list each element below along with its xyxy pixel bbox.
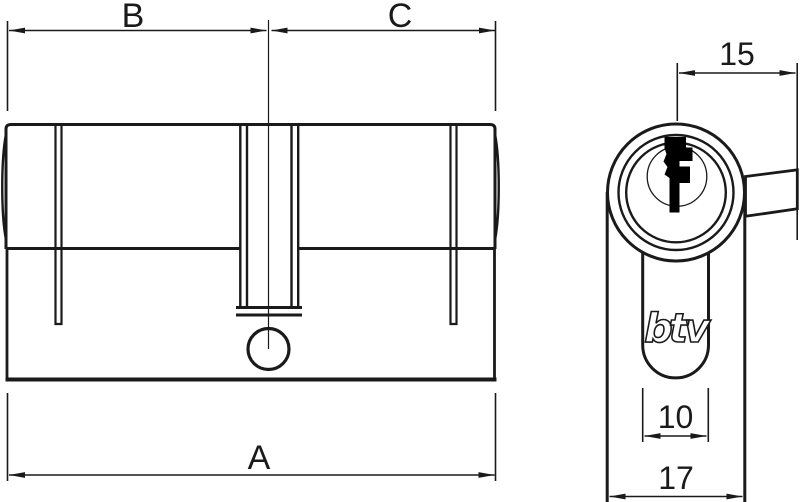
- arrowhead-17-right: [727, 494, 743, 500]
- dim-a-label: A: [248, 439, 271, 477]
- dim-15-label: 15: [719, 36, 755, 72]
- arrowhead-b-right: [251, 28, 267, 34]
- arrowhead-a-left: [9, 472, 25, 478]
- arrowhead-15-right: [780, 70, 796, 76]
- cylinder-side-view: [2, 20, 499, 380]
- cylinder-front-view: btv: [607, 124, 797, 502]
- cam-lobe: [746, 170, 798, 217]
- btv-logo: btv: [644, 306, 712, 352]
- dim-b-label: B: [122, 0, 145, 35]
- arrowhead-c-left: [272, 28, 288, 34]
- arrowhead-c-right: [479, 28, 495, 34]
- dim-17-label: 17: [658, 460, 694, 496]
- technical-drawing-canvas: B C A btv 15 10: [0, 0, 800, 502]
- barrel-outline: [6, 125, 495, 250]
- front-view-dimensions: 15 10 17: [610, 36, 798, 499]
- arrowhead-b-left: [9, 28, 25, 34]
- arrowhead-15-left: [679, 70, 695, 76]
- dim-c-label: C: [388, 0, 413, 35]
- arrowhead-17-left: [610, 494, 626, 500]
- arrowhead-a-right: [479, 472, 495, 478]
- dim-10-label: 10: [658, 399, 694, 435]
